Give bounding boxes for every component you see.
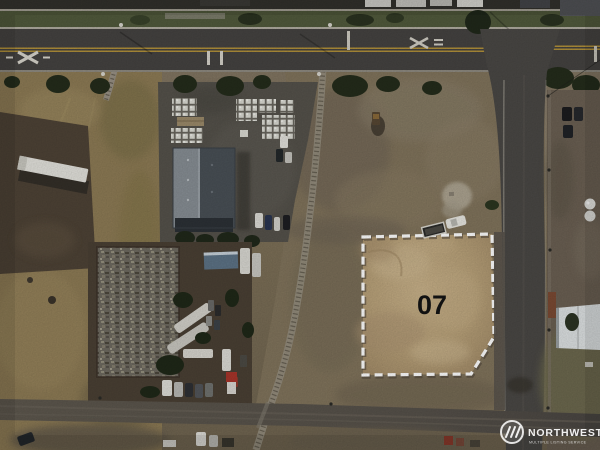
aerial-photo-canvas: 07 <box>0 0 600 450</box>
photo-grain <box>0 0 600 450</box>
watermark-brand-text: NORTHWEST <box>528 427 600 439</box>
watermark-tagline-text: MULTIPLE LISTING SERVICE <box>529 441 587 445</box>
aerial-photo: 07 <box>0 0 600 450</box>
nwmls-logo-icon <box>501 421 523 443</box>
